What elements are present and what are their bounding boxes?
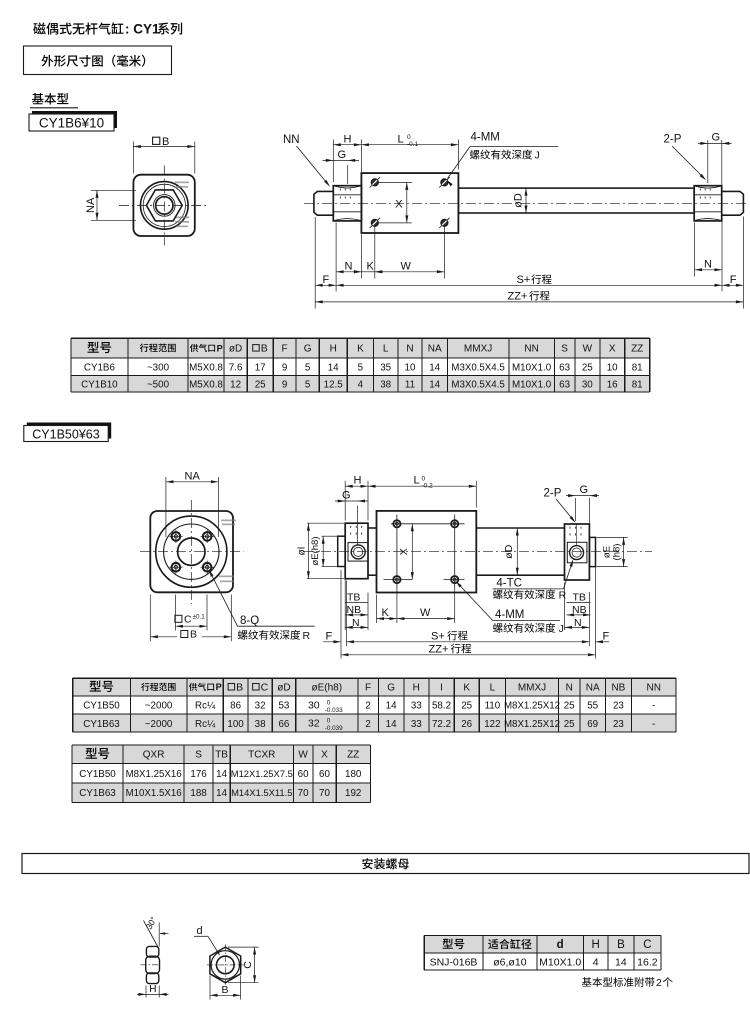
svg-text:33: 33 — [411, 719, 422, 730]
svg-text:5: 5 — [358, 363, 364, 374]
svg-text:N: N — [345, 260, 353, 272]
svg-text:H: H — [354, 475, 362, 487]
svg-text:M3X0.5X4.5: M3X0.5X4.5 — [451, 380, 504, 391]
svg-text:81: 81 — [632, 380, 643, 391]
svg-text:G: G — [580, 484, 589, 496]
svg-text:ZZ: ZZ — [631, 344, 643, 355]
svg-text:CY1B10: CY1B10 — [81, 380, 118, 391]
svg-text:J: J — [559, 623, 564, 635]
svg-text:K: K — [367, 260, 375, 272]
svg-text:F: F — [323, 274, 330, 286]
svg-text:38: 38 — [255, 719, 266, 730]
svg-text:øD: øD — [229, 344, 242, 355]
svg-text:~300: ~300 — [147, 363, 170, 374]
svg-text:N: N — [352, 617, 360, 629]
svg-text:11: 11 — [405, 380, 415, 391]
svg-text:110: 110 — [485, 701, 501, 712]
svg-text:81: 81 — [632, 363, 643, 374]
svg-text:8-Q: 8-Q — [240, 615, 259, 627]
svg-text:23: 23 — [613, 701, 624, 712]
svg-text:5: 5 — [305, 380, 311, 391]
svg-text:14: 14 — [429, 363, 440, 374]
svg-text:: CY1: : CY1 — [125, 22, 160, 37]
svg-text:H: H — [149, 984, 156, 995]
svg-text:14: 14 — [386, 701, 397, 712]
svg-text:86: 86 — [230, 701, 241, 712]
svg-text:CY1B63: CY1B63 — [83, 719, 120, 730]
svg-text:25: 25 — [461, 701, 472, 712]
svg-text:23: 23 — [613, 719, 624, 730]
svg-text:G: G — [342, 489, 351, 501]
svg-text:TB: TB — [215, 750, 228, 761]
svg-text:ZZ+: ZZ+ — [508, 291, 528, 303]
svg-text:0: 0 — [327, 699, 331, 706]
svg-text:4: 4 — [593, 956, 599, 968]
svg-text:L: L — [383, 344, 389, 355]
svg-text:176: 176 — [190, 769, 207, 780]
svg-text:F: F — [365, 683, 371, 694]
svg-text:14: 14 — [615, 956, 627, 968]
svg-text:F: F — [282, 344, 288, 355]
svg-text:-0.2: -0.2 — [422, 483, 434, 490]
svg-text:2-P: 2-P — [664, 134, 682, 146]
svg-text:W: W — [583, 344, 593, 355]
svg-text:32: 32 — [308, 718, 320, 730]
svg-text:M5X0.8: M5X0.8 — [189, 380, 223, 391]
svg-text:B: B — [617, 939, 625, 951]
svg-text:øI: øI — [297, 547, 308, 556]
svg-text:2: 2 — [365, 701, 370, 712]
svg-text:66: 66 — [278, 719, 289, 730]
svg-text:55: 55 — [587, 701, 598, 712]
svg-text:2: 2 — [656, 977, 662, 989]
svg-text:14: 14 — [216, 769, 227, 780]
svg-text:NN: NN — [646, 683, 660, 694]
svg-text:5: 5 — [305, 363, 311, 374]
svg-text:X: X — [398, 548, 410, 555]
svg-text:d: d — [197, 925, 203, 937]
svg-text:R: R — [559, 589, 567, 601]
svg-text:SNJ-016B: SNJ-016B — [430, 956, 478, 968]
svg-text:70: 70 — [298, 788, 309, 799]
svg-text:M8X1.25X16: M8X1.25X16 — [126, 769, 182, 780]
svg-text:G: G — [304, 344, 312, 355]
svg-text:M10X1.0: M10X1.0 — [539, 956, 581, 968]
svg-text:(h8): (h8) — [612, 544, 623, 561]
svg-text:L: L — [398, 133, 404, 145]
svg-text:P: P — [216, 682, 222, 692]
svg-text:-0.033: -0.033 — [325, 707, 343, 714]
svg-text:16.2: 16.2 — [637, 956, 658, 968]
svg-text:N: N — [574, 617, 582, 629]
svg-text:ø6,ø10: ø6,ø10 — [493, 956, 526, 968]
svg-text:N: N — [406, 344, 413, 355]
svg-text:F: F — [326, 630, 333, 642]
svg-text:10: 10 — [607, 363, 618, 374]
svg-text:H: H — [330, 344, 337, 355]
svg-text:P: P — [217, 343, 223, 353]
svg-text:NA: NA — [185, 471, 201, 483]
svg-text:L: L — [490, 683, 496, 694]
svg-text:C: C — [184, 613, 192, 625]
svg-text:Rc¼: Rc¼ — [195, 719, 216, 730]
svg-text:~2000: ~2000 — [145, 719, 173, 730]
svg-text:C: C — [261, 682, 269, 694]
svg-text:øD: øD — [277, 683, 290, 694]
svg-text:K: K — [382, 607, 390, 619]
svg-text:ZZ+: ZZ+ — [429, 643, 449, 655]
svg-text:M10X1.0: M10X1.0 — [512, 380, 552, 391]
svg-text:188: 188 — [190, 788, 207, 799]
svg-text:-: - — [652, 719, 655, 730]
svg-text:H: H — [413, 683, 420, 694]
svg-text:NA: NA — [586, 683, 600, 694]
svg-text:-0.039: -0.039 — [325, 725, 343, 732]
svg-text:4-TC: 4-TC — [496, 578, 522, 590]
svg-text:-0.1: -0.1 — [407, 141, 419, 148]
svg-text:W: W — [298, 750, 308, 761]
svg-text:B: B — [236, 682, 243, 694]
svg-text:Rc¼: Rc¼ — [195, 701, 216, 712]
svg-text:TB: TB — [347, 591, 360, 603]
svg-text:d: d — [557, 939, 564, 951]
svg-text:4-MM: 4-MM — [495, 609, 524, 621]
svg-text:7.6: 7.6 — [229, 363, 243, 374]
svg-text:M10X1.5X16: M10X1.5X16 — [126, 788, 182, 799]
svg-text:53: 53 — [278, 701, 289, 712]
svg-text:0: 0 — [422, 475, 426, 482]
svg-text:ZZ: ZZ — [347, 750, 359, 761]
svg-text:CY1B50: CY1B50 — [83, 701, 120, 712]
svg-text:CY1B50: CY1B50 — [79, 769, 116, 780]
svg-text:70: 70 — [319, 788, 330, 799]
svg-text:16: 16 — [607, 380, 618, 391]
svg-text:K: K — [463, 683, 470, 694]
svg-text:CY1B6: CY1B6 — [84, 363, 116, 374]
svg-text:M8X1.25X12: M8X1.25X12 — [504, 701, 560, 712]
svg-text:R: R — [303, 630, 311, 642]
svg-text:G: G — [338, 149, 347, 161]
svg-text:63: 63 — [559, 363, 570, 374]
svg-text:192: 192 — [345, 788, 361, 799]
svg-text:-: - — [652, 701, 655, 712]
svg-text:35: 35 — [380, 363, 391, 374]
svg-text:S: S — [195, 750, 202, 761]
svg-text:9: 9 — [282, 380, 287, 391]
svg-text:25: 25 — [255, 380, 266, 391]
svg-text:14: 14 — [429, 380, 440, 391]
svg-text:M10X1.0: M10X1.0 — [512, 363, 552, 374]
svg-text:25: 25 — [564, 719, 575, 730]
svg-text:TCXR: TCXR — [248, 750, 275, 761]
svg-text:S+: S+ — [517, 274, 531, 286]
svg-text:14: 14 — [216, 788, 227, 799]
svg-text:X: X — [395, 199, 403, 211]
svg-text:NN: NN — [524, 344, 538, 355]
svg-text:10: 10 — [405, 363, 416, 374]
svg-text:0: 0 — [407, 134, 411, 141]
svg-text:N: N — [566, 683, 573, 694]
svg-text:12.5: 12.5 — [324, 380, 344, 391]
svg-text:C: C — [643, 939, 651, 951]
svg-text:~500: ~500 — [147, 380, 170, 391]
svg-text:60: 60 — [319, 769, 330, 780]
svg-text:H: H — [592, 939, 600, 951]
svg-text:X: X — [609, 344, 616, 355]
svg-text:17: 17 — [255, 363, 266, 374]
svg-text:180: 180 — [345, 769, 362, 780]
svg-text:B: B — [190, 629, 197, 641]
svg-text:33: 33 — [411, 701, 422, 712]
svg-text:38: 38 — [380, 380, 391, 391]
svg-text:B: B — [222, 984, 229, 996]
svg-text:QXR: QXR — [143, 750, 165, 761]
svg-text:L: L — [414, 475, 420, 487]
svg-text:S+: S+ — [431, 631, 445, 643]
svg-text:NA: NA — [85, 197, 97, 213]
svg-text:58.2: 58.2 — [432, 701, 451, 712]
svg-text:M8X1.25X12: M8X1.25X12 — [504, 719, 560, 730]
svg-text:X: X — [321, 750, 328, 761]
svg-text:NB: NB — [347, 604, 362, 616]
svg-text:øE(h8): øE(h8) — [312, 683, 343, 694]
svg-text:øD: øD — [513, 193, 525, 208]
svg-text:14: 14 — [386, 719, 397, 730]
svg-text:K: K — [357, 344, 364, 355]
svg-text:NN: NN — [283, 134, 300, 146]
svg-text:2: 2 — [365, 719, 370, 730]
svg-text:32: 32 — [255, 701, 266, 712]
svg-text:30: 30 — [582, 380, 593, 391]
svg-text:122: 122 — [484, 719, 500, 730]
svg-text:12: 12 — [230, 380, 241, 391]
svg-text:M3X0.5X4.5: M3X0.5X4.5 — [451, 363, 504, 374]
svg-text:C: C — [242, 961, 254, 969]
svg-text:30: 30 — [308, 699, 320, 711]
svg-text:CY1B6¥10: CY1B6¥10 — [39, 116, 104, 131]
svg-text:B: B — [261, 343, 268, 355]
svg-text:I: I — [440, 683, 443, 694]
svg-text:W: W — [401, 260, 412, 272]
svg-text:0: 0 — [327, 718, 331, 725]
svg-text:G: G — [712, 132, 721, 144]
svg-text:4: 4 — [358, 380, 364, 391]
svg-text:25: 25 — [564, 701, 575, 712]
svg-text:N: N — [704, 258, 712, 270]
svg-text:TB: TB — [573, 591, 586, 603]
svg-text:W: W — [420, 607, 431, 619]
svg-text:øD: øD — [503, 544, 515, 558]
svg-text:J: J — [535, 150, 540, 162]
svg-text:72.2: 72.2 — [432, 719, 451, 730]
svg-text:2-P: 2-P — [544, 488, 562, 500]
svg-text:B: B — [162, 136, 169, 148]
svg-text:F: F — [730, 274, 737, 286]
svg-text:M12X1.25X7.5: M12X1.25X7.5 — [231, 768, 293, 779]
svg-text:9: 9 — [282, 363, 287, 374]
svg-text:S: S — [561, 344, 568, 355]
svg-text:26: 26 — [461, 719, 472, 730]
svg-text:M5X0.8: M5X0.8 — [189, 363, 223, 374]
svg-text:H: H — [344, 133, 352, 145]
svg-text:MMXJ: MMXJ — [518, 683, 546, 694]
svg-text:±0.1: ±0.1 — [193, 613, 206, 620]
svg-text:CY1B50¥63: CY1B50¥63 — [32, 428, 99, 442]
svg-text:14: 14 — [328, 363, 339, 374]
svg-text:NB: NB — [611, 683, 625, 694]
svg-text:øE(h8): øE(h8) — [310, 536, 321, 565]
svg-text:100: 100 — [227, 719, 244, 730]
svg-text:F: F — [603, 630, 610, 642]
svg-text:M14X1.5X11.5: M14X1.5X11.5 — [231, 787, 292, 798]
svg-text:~2000: ~2000 — [145, 701, 173, 712]
svg-text:4-MM: 4-MM — [471, 131, 500, 143]
svg-text:CY1B63: CY1B63 — [79, 788, 116, 799]
svg-text:NA: NA — [428, 344, 442, 355]
svg-text:60: 60 — [298, 769, 309, 780]
svg-text:25: 25 — [582, 363, 593, 374]
svg-text:MMXJ: MMXJ — [464, 344, 492, 355]
svg-text:63: 63 — [559, 380, 570, 391]
svg-text:69: 69 — [587, 719, 598, 730]
svg-text:G: G — [387, 683, 395, 694]
